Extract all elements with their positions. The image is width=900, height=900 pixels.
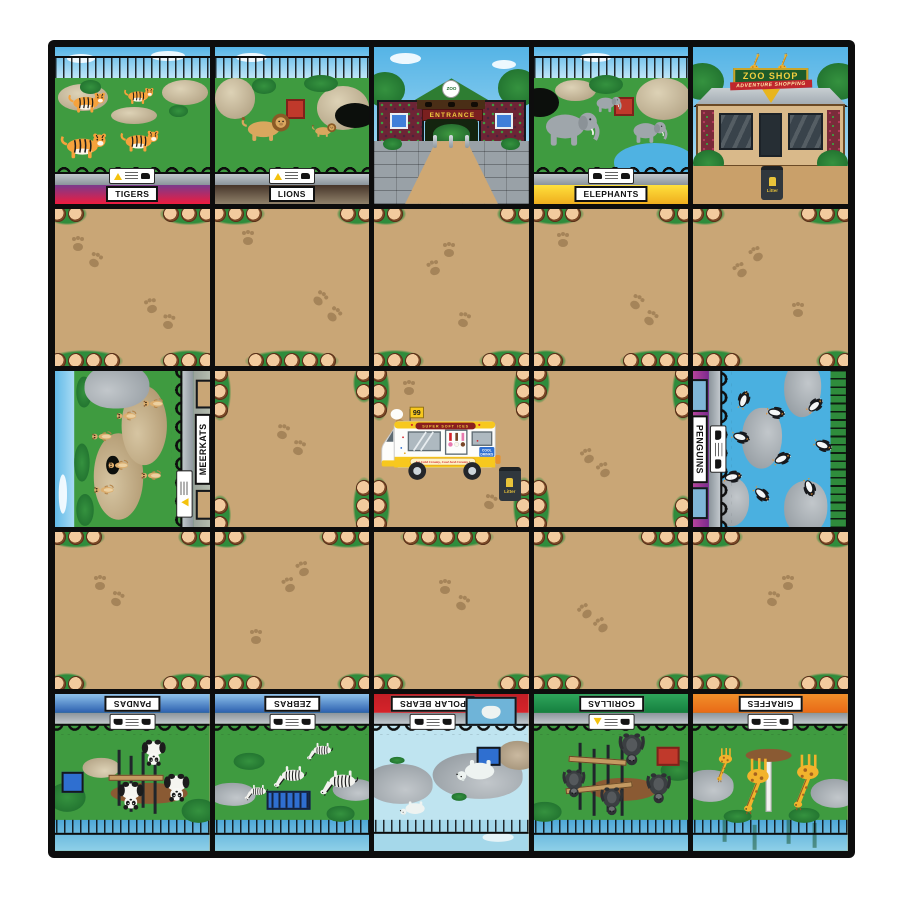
- log-border: [215, 495, 231, 527]
- animal-silhouette-icon: [780, 719, 789, 725]
- paw-print: [284, 583, 296, 594]
- meerkats-strip: MEERKATS: [194, 371, 210, 528]
- elephants-enclosure: ELEPHANTS: [534, 47, 689, 204]
- elephants-strip: ELEPHANTS: [534, 185, 689, 204]
- paw-print: [736, 267, 749, 279]
- penguin-icon: [813, 436, 834, 453]
- gorilla-icon: [648, 773, 669, 803]
- pandas-enclosure: PANDAS: [55, 694, 210, 851]
- tigers-enclosure: TIGERS: [55, 47, 210, 204]
- giraffes-strip: GIRAFFES: [693, 694, 848, 713]
- meerkat-icon: [141, 470, 160, 479]
- penguin-icon: [731, 429, 752, 445]
- polar-bear-in-window-icon: [482, 706, 501, 720]
- polar-bears-label: POLAR BEARS: [391, 696, 475, 712]
- log-border: [693, 209, 725, 225]
- warning-sign: [588, 168, 634, 184]
- sign-text-lines: [426, 718, 439, 726]
- sign-text-lines: [285, 718, 298, 726]
- sign-text-lines: [605, 172, 618, 180]
- paw-print: [440, 586, 450, 594]
- log-border: [638, 532, 688, 548]
- penguins-label: PENGUINS: [693, 415, 707, 483]
- cell-penguins: PENGUINS: [693, 371, 848, 528]
- paw-print: [444, 249, 454, 257]
- van-slogan-text: Ice Cold Creamy, Cool Iced Creamy !: [415, 460, 471, 464]
- log-border: [55, 209, 87, 225]
- paw-print: [642, 315, 655, 327]
- sign-text-lines: [285, 172, 298, 180]
- log-border: [178, 532, 210, 548]
- giraffe-calf-icon: [717, 748, 732, 782]
- panda-icon: [164, 774, 189, 802]
- paw-print: [298, 567, 310, 578]
- gorilla-icon: [602, 788, 622, 816]
- log-border: [816, 350, 848, 366]
- zoo-logo-badge: ZOO: [442, 80, 460, 98]
- entrance-right-wing: [479, 100, 525, 144]
- penguins-enclosure: PENGUINS: [693, 371, 848, 528]
- zebras-strip: ZEBRAS: [215, 694, 370, 713]
- penguin-icon: [805, 395, 827, 416]
- animal-silhouette-icon: [414, 719, 423, 725]
- polar-bears-enclosure: POLAR BEARS: [374, 694, 529, 851]
- animal-silhouette-icon: [593, 173, 602, 179]
- zoo-shop: ZOO SHOP ADVENTURE SHOPPING Litter: [693, 47, 848, 204]
- window: [495, 113, 513, 129]
- warning-sign: [748, 714, 794, 730]
- giraffe-icon: [744, 758, 769, 814]
- log-border: [672, 495, 688, 527]
- cool-drinks-sign-line2: DRINKS: [481, 452, 495, 456]
- log-border: [337, 673, 369, 689]
- tiger-icon: [62, 134, 106, 159]
- turnstile: [433, 135, 437, 148]
- cell-meerkats: MEERKATS: [55, 371, 210, 528]
- warning-sign: [109, 168, 155, 184]
- meerkat-icon: [92, 431, 111, 440]
- tigers-label: TIGERS: [106, 186, 158, 202]
- warning-triangle-icon: [593, 718, 601, 725]
- zebras-label: ZEBRAS: [264, 696, 319, 712]
- log-border: [816, 532, 848, 548]
- elephant-icon: [546, 113, 597, 146]
- log-border: [319, 532, 369, 548]
- lions-enclosure: LIONS: [215, 47, 370, 204]
- animal-silhouette-icon: [301, 173, 310, 179]
- log-border: [620, 350, 688, 366]
- log-border: [374, 209, 406, 225]
- log-border: [479, 350, 529, 366]
- log-border: [215, 532, 247, 548]
- paw-print: [429, 265, 441, 276]
- meerkat-icon: [117, 411, 136, 420]
- cell-gorillas: GORILLAS: [534, 694, 689, 851]
- viewing-window: [693, 379, 707, 412]
- log-border: [353, 371, 369, 403]
- paw-print: [793, 309, 803, 317]
- warning-sign: [109, 714, 155, 730]
- animal-silhouette-icon: [425, 102, 432, 107]
- ice-cream-van: 99 SUPER SOFT ICES COOL DRINKS Ice Cold …: [380, 396, 513, 496]
- paw-print: [95, 582, 105, 590]
- animal-silhouette-icon: [471, 102, 478, 107]
- paw-print: [483, 499, 495, 510]
- paw-print: [404, 387, 414, 395]
- gorilla-icon: [564, 770, 584, 798]
- penguin-icon: [801, 477, 818, 498]
- sign-text-lines: [764, 718, 777, 726]
- turnstile: [449, 135, 453, 148]
- cell-zoo-shop: ZOO SHOP ADVENTURE SHOPPING Litter: [693, 47, 848, 204]
- planter-bush: [501, 138, 520, 151]
- zoo-entrance: ZOO ENTRANCE: [374, 47, 529, 204]
- paw-print: [767, 597, 779, 607]
- sign-text-lines: [604, 718, 617, 726]
- path-cell: [374, 209, 529, 366]
- cell-lions: LIONS: [215, 47, 370, 204]
- animal-silhouette-icon: [715, 430, 721, 439]
- litter-bin: Litter: [499, 467, 521, 501]
- animal-silhouette-icon: [752, 719, 761, 725]
- panda-icon: [118, 782, 143, 810]
- giraffes-label: GIRAFFES: [739, 696, 803, 712]
- meerkat-icon: [143, 398, 162, 407]
- log-border: [55, 350, 123, 366]
- elephant-icon: [596, 97, 620, 112]
- paw-print: [73, 243, 83, 251]
- giraffe-icon: [794, 754, 819, 810]
- path-cell: [534, 532, 689, 689]
- zebra-icon: [273, 766, 305, 788]
- cloud: [492, 60, 517, 69]
- warning-triangle-icon: [274, 173, 282, 180]
- paw-print: [110, 597, 122, 608]
- warning-sign: [710, 425, 726, 472]
- log-border: [534, 477, 550, 527]
- cell-polar-bears: POLAR BEARS: [374, 694, 529, 851]
- log-border: [55, 532, 105, 548]
- log-border: [55, 673, 87, 689]
- cloud: [390, 53, 421, 64]
- log-border: [513, 371, 529, 421]
- paw-print: [276, 429, 288, 439]
- log-border: [693, 350, 743, 366]
- litter-bin-label: Litter: [504, 489, 515, 494]
- pandas-strip: PANDAS: [55, 694, 210, 713]
- log-border: [245, 350, 339, 366]
- log-border: [798, 673, 848, 689]
- pandas-label: PANDAS: [104, 696, 160, 712]
- lion-icon: [241, 114, 289, 141]
- log-border: [534, 532, 566, 548]
- animal-silhouette-icon: [114, 719, 123, 725]
- log-border: [160, 673, 210, 689]
- warning-triangle-icon: [114, 173, 122, 180]
- log-border: [656, 673, 688, 689]
- path-cell: [215, 209, 370, 366]
- sign-text-lines: [181, 481, 189, 494]
- paw-print: [783, 582, 793, 590]
- paw-print: [628, 299, 641, 311]
- animal-frieze: [417, 100, 485, 109]
- tiger-icon: [69, 93, 104, 113]
- cell-pandas: PANDAS: [55, 694, 210, 851]
- paw-print: [457, 318, 469, 328]
- log-border: [337, 209, 369, 225]
- lions-strip: LIONS: [215, 185, 370, 204]
- paw-print: [596, 622, 609, 634]
- meerkats-label: MEERKATS: [195, 414, 209, 484]
- litter-figure-icon: [506, 478, 513, 487]
- turnstile: [465, 135, 469, 148]
- meerkat-icon: [94, 485, 113, 494]
- paw-print: [311, 295, 324, 308]
- paw-print: [243, 237, 253, 245]
- log-border: [215, 371, 231, 421]
- animal-silhouette-icon: [273, 719, 282, 725]
- viewing-window: [693, 486, 707, 519]
- window: [390, 113, 408, 129]
- paw-print: [146, 304, 158, 314]
- gorillas-enclosure: GORILLAS: [534, 694, 689, 851]
- paw-print: [325, 311, 338, 324]
- tiger-icon: [125, 88, 153, 104]
- paw-print: [162, 320, 173, 330]
- paw-print: [251, 636, 261, 644]
- animal-silhouette-icon: [621, 173, 630, 179]
- swimming-elephant-icon: [633, 122, 666, 143]
- warning-sign: [269, 714, 315, 730]
- log-border: [497, 209, 529, 225]
- sign-text-lines: [125, 172, 138, 180]
- gorillas-label: GORILLAS: [579, 696, 644, 712]
- warning-sign: [410, 714, 456, 730]
- paw-print: [88, 257, 100, 268]
- penguin-icon: [766, 405, 786, 420]
- log-border: [400, 532, 494, 548]
- path-cell: [534, 371, 689, 528]
- log-border: [534, 350, 566, 366]
- path-cell: [215, 371, 370, 528]
- van-banner-text: SUPER SOFT ICES: [423, 424, 470, 428]
- log-border: [374, 673, 406, 689]
- log-border: [534, 371, 550, 403]
- sign-text-lines: [126, 718, 139, 726]
- penguin-icon: [735, 389, 752, 410]
- log-border: [374, 350, 424, 366]
- tigers-strip: TIGERS: [55, 185, 210, 204]
- elephants-label: ELEPHANTS: [575, 186, 648, 202]
- log-border: [160, 350, 210, 366]
- penguins-strip: PENGUINS: [693, 371, 709, 528]
- meerkats-enclosure: MEERKATS: [55, 371, 210, 528]
- log-border: [160, 209, 210, 225]
- zebra-icon: [244, 785, 267, 801]
- log-border: [672, 371, 688, 421]
- paw-print: [292, 445, 304, 455]
- lions-label: LIONS: [269, 186, 315, 202]
- zebra-icon: [320, 771, 357, 797]
- viewing-window: [196, 489, 210, 519]
- cell-tigers: TIGERS: [55, 47, 210, 204]
- sign-text-lines: [714, 442, 722, 455]
- polar-bear-icon: [456, 760, 494, 781]
- log-border: [353, 477, 369, 527]
- animal-silhouette-icon: [620, 719, 629, 725]
- paw-print: [558, 239, 568, 247]
- paw-print: [599, 467, 611, 478]
- animal-silhouette-icon: [142, 719, 151, 725]
- lion-cub-icon: [312, 123, 336, 137]
- silverback-gorilla-icon: [620, 734, 643, 766]
- playmat-grid: TIGERS LIONS: [48, 40, 855, 858]
- log-border: [534, 673, 584, 689]
- log-border: [693, 532, 743, 548]
- log-border: [215, 209, 265, 225]
- cell-zebras: ZEBRAS: [215, 694, 370, 851]
- log-border: [497, 673, 529, 689]
- animal-silhouette-icon: [448, 102, 455, 107]
- log-border: [215, 673, 265, 689]
- zoo-playmat: TIGERS LIONS: [0, 0, 900, 900]
- log-border: [693, 673, 743, 689]
- path-cell: [215, 532, 370, 689]
- gorillas-strip: GORILLAS: [534, 694, 689, 713]
- animal-silhouette-icon: [301, 719, 310, 725]
- paw-print: [752, 251, 765, 263]
- path-cell: [693, 209, 848, 366]
- panda-icon: [142, 740, 166, 766]
- path-cell: [55, 209, 210, 366]
- log-border: [798, 209, 848, 225]
- paw-print: [583, 453, 595, 464]
- giraffes-enclosure: GIRAFFES: [693, 694, 848, 851]
- log-border: [656, 209, 688, 225]
- paw-print: [455, 601, 467, 612]
- underwater-viewing-window: [466, 697, 516, 726]
- path-cell: [55, 532, 210, 689]
- path-cell: [693, 532, 848, 689]
- zebra-icon: [307, 743, 333, 761]
- penguin-icon: [772, 449, 794, 468]
- cell-entrance: ZOO ENTRANCE: [374, 47, 529, 204]
- tiger-icon: [122, 131, 159, 152]
- van-flag-number: 99: [413, 409, 421, 417]
- meerkat-icon: [109, 460, 128, 469]
- animal-silhouette-icon: [141, 173, 150, 179]
- warning-sign: [269, 168, 315, 184]
- warning-sign: [176, 470, 192, 517]
- log-border: [534, 209, 584, 225]
- path-cell: [534, 209, 689, 366]
- zebras-enclosure: ZEBRAS: [215, 694, 370, 851]
- warning-sign: [588, 714, 634, 730]
- animal-silhouette-icon: [715, 459, 721, 468]
- cell-elephants: ELEPHANTS: [534, 47, 689, 204]
- paw-print: [580, 608, 593, 620]
- penguin-icon: [751, 483, 773, 504]
- animal-silhouette-icon: [442, 719, 451, 725]
- cell-giraffes: GIRAFFES: [693, 694, 848, 851]
- viewing-window: [196, 379, 210, 409]
- swimming-polar-bear-icon: [400, 802, 425, 816]
- warning-triangle-icon: [181, 498, 188, 506]
- path-cell: [374, 532, 529, 689]
- cell-ice-cream-van: 99 SUPER SOFT ICES COOL DRINKS Ice Cold …: [374, 371, 529, 528]
